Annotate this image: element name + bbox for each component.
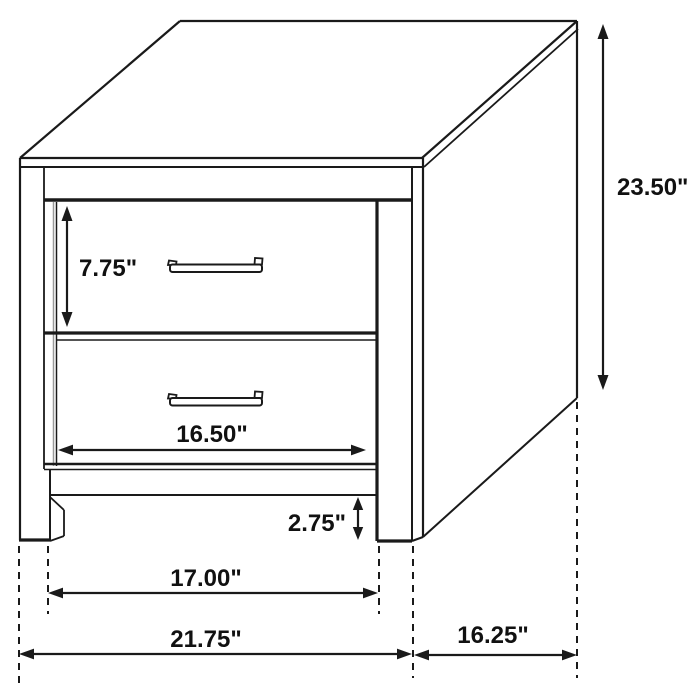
dimension-overall-width: 21.75" (19, 626, 412, 659)
nightstand-dimension-diagram: 7.75" 23.50" 16.50" 2.75" 17 (0, 0, 700, 700)
overall-depth-label: 16.25" (457, 622, 528, 649)
overall-width-label: 21.75" (170, 626, 241, 653)
arrowhead-up (353, 497, 363, 510)
dimension-drawer-height: 7.75" (62, 206, 138, 327)
arrowhead-left (414, 650, 429, 661)
arrowhead-right (351, 445, 366, 456)
base-rail-and-legs (19, 469, 423, 541)
cabinet-top-panel (20, 21, 578, 167)
dimension-overall-depth: 16.25" (414, 622, 577, 660)
arrowhead-right (562, 650, 577, 661)
base-clearance-label: 2.75" (288, 510, 346, 537)
inner-leg-span-label: 17.00" (170, 565, 241, 592)
drawer-height-label: 7.75" (79, 255, 137, 282)
arrowhead-up (598, 24, 609, 39)
arrowhead-up (62, 206, 73, 221)
drawer-width-label: 16.50" (176, 421, 247, 448)
arrowhead-left (48, 588, 63, 599)
arrowhead-left (58, 445, 73, 456)
arrowhead-right (363, 588, 378, 599)
dimension-overall-height: 23.50" (598, 24, 689, 390)
drawer-bottom-handle (170, 398, 262, 406)
dimension-base-clearance: 2.75" (288, 497, 363, 540)
dimension-drawer-width: 16.50" (58, 421, 366, 455)
diagram-svg: 7.75" 23.50" 16.50" 2.75" 17 (0, 0, 700, 700)
drawer-top-handle (170, 265, 262, 273)
arrowhead-down (62, 312, 73, 327)
arrowhead-right (397, 649, 412, 660)
overall-height-label: 23.50" (617, 174, 688, 201)
arrowhead-down (598, 375, 609, 390)
dimension-inner-leg-span: 17.00" (48, 565, 378, 598)
arrowhead-left (19, 649, 34, 660)
arrowhead-down (353, 527, 363, 540)
cabinet-front-frame (20, 158, 412, 541)
